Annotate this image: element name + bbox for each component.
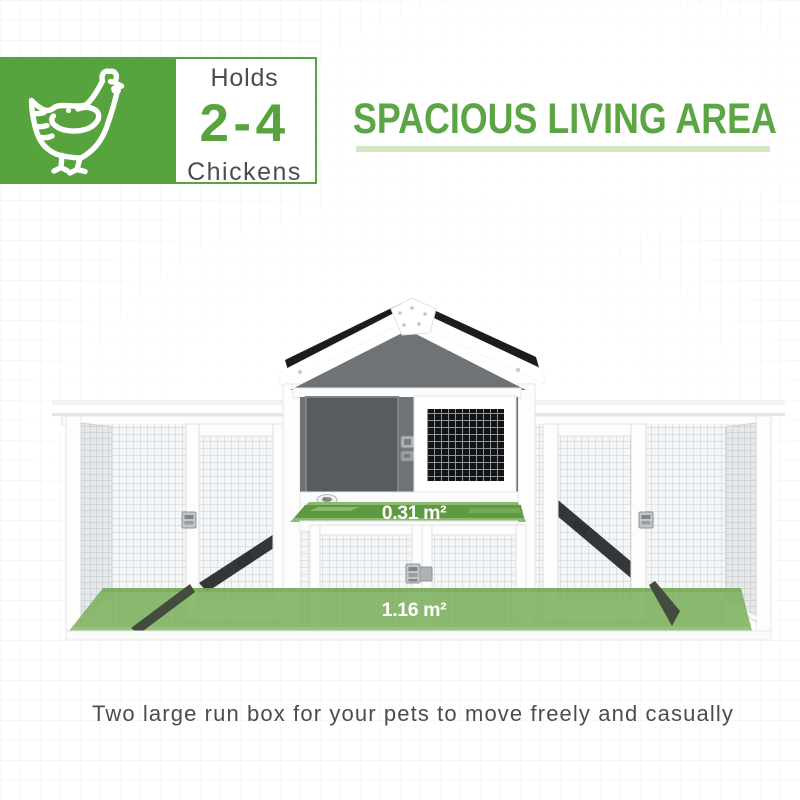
svg-text:1.16 m²: 1.16 m² [382, 599, 447, 621]
